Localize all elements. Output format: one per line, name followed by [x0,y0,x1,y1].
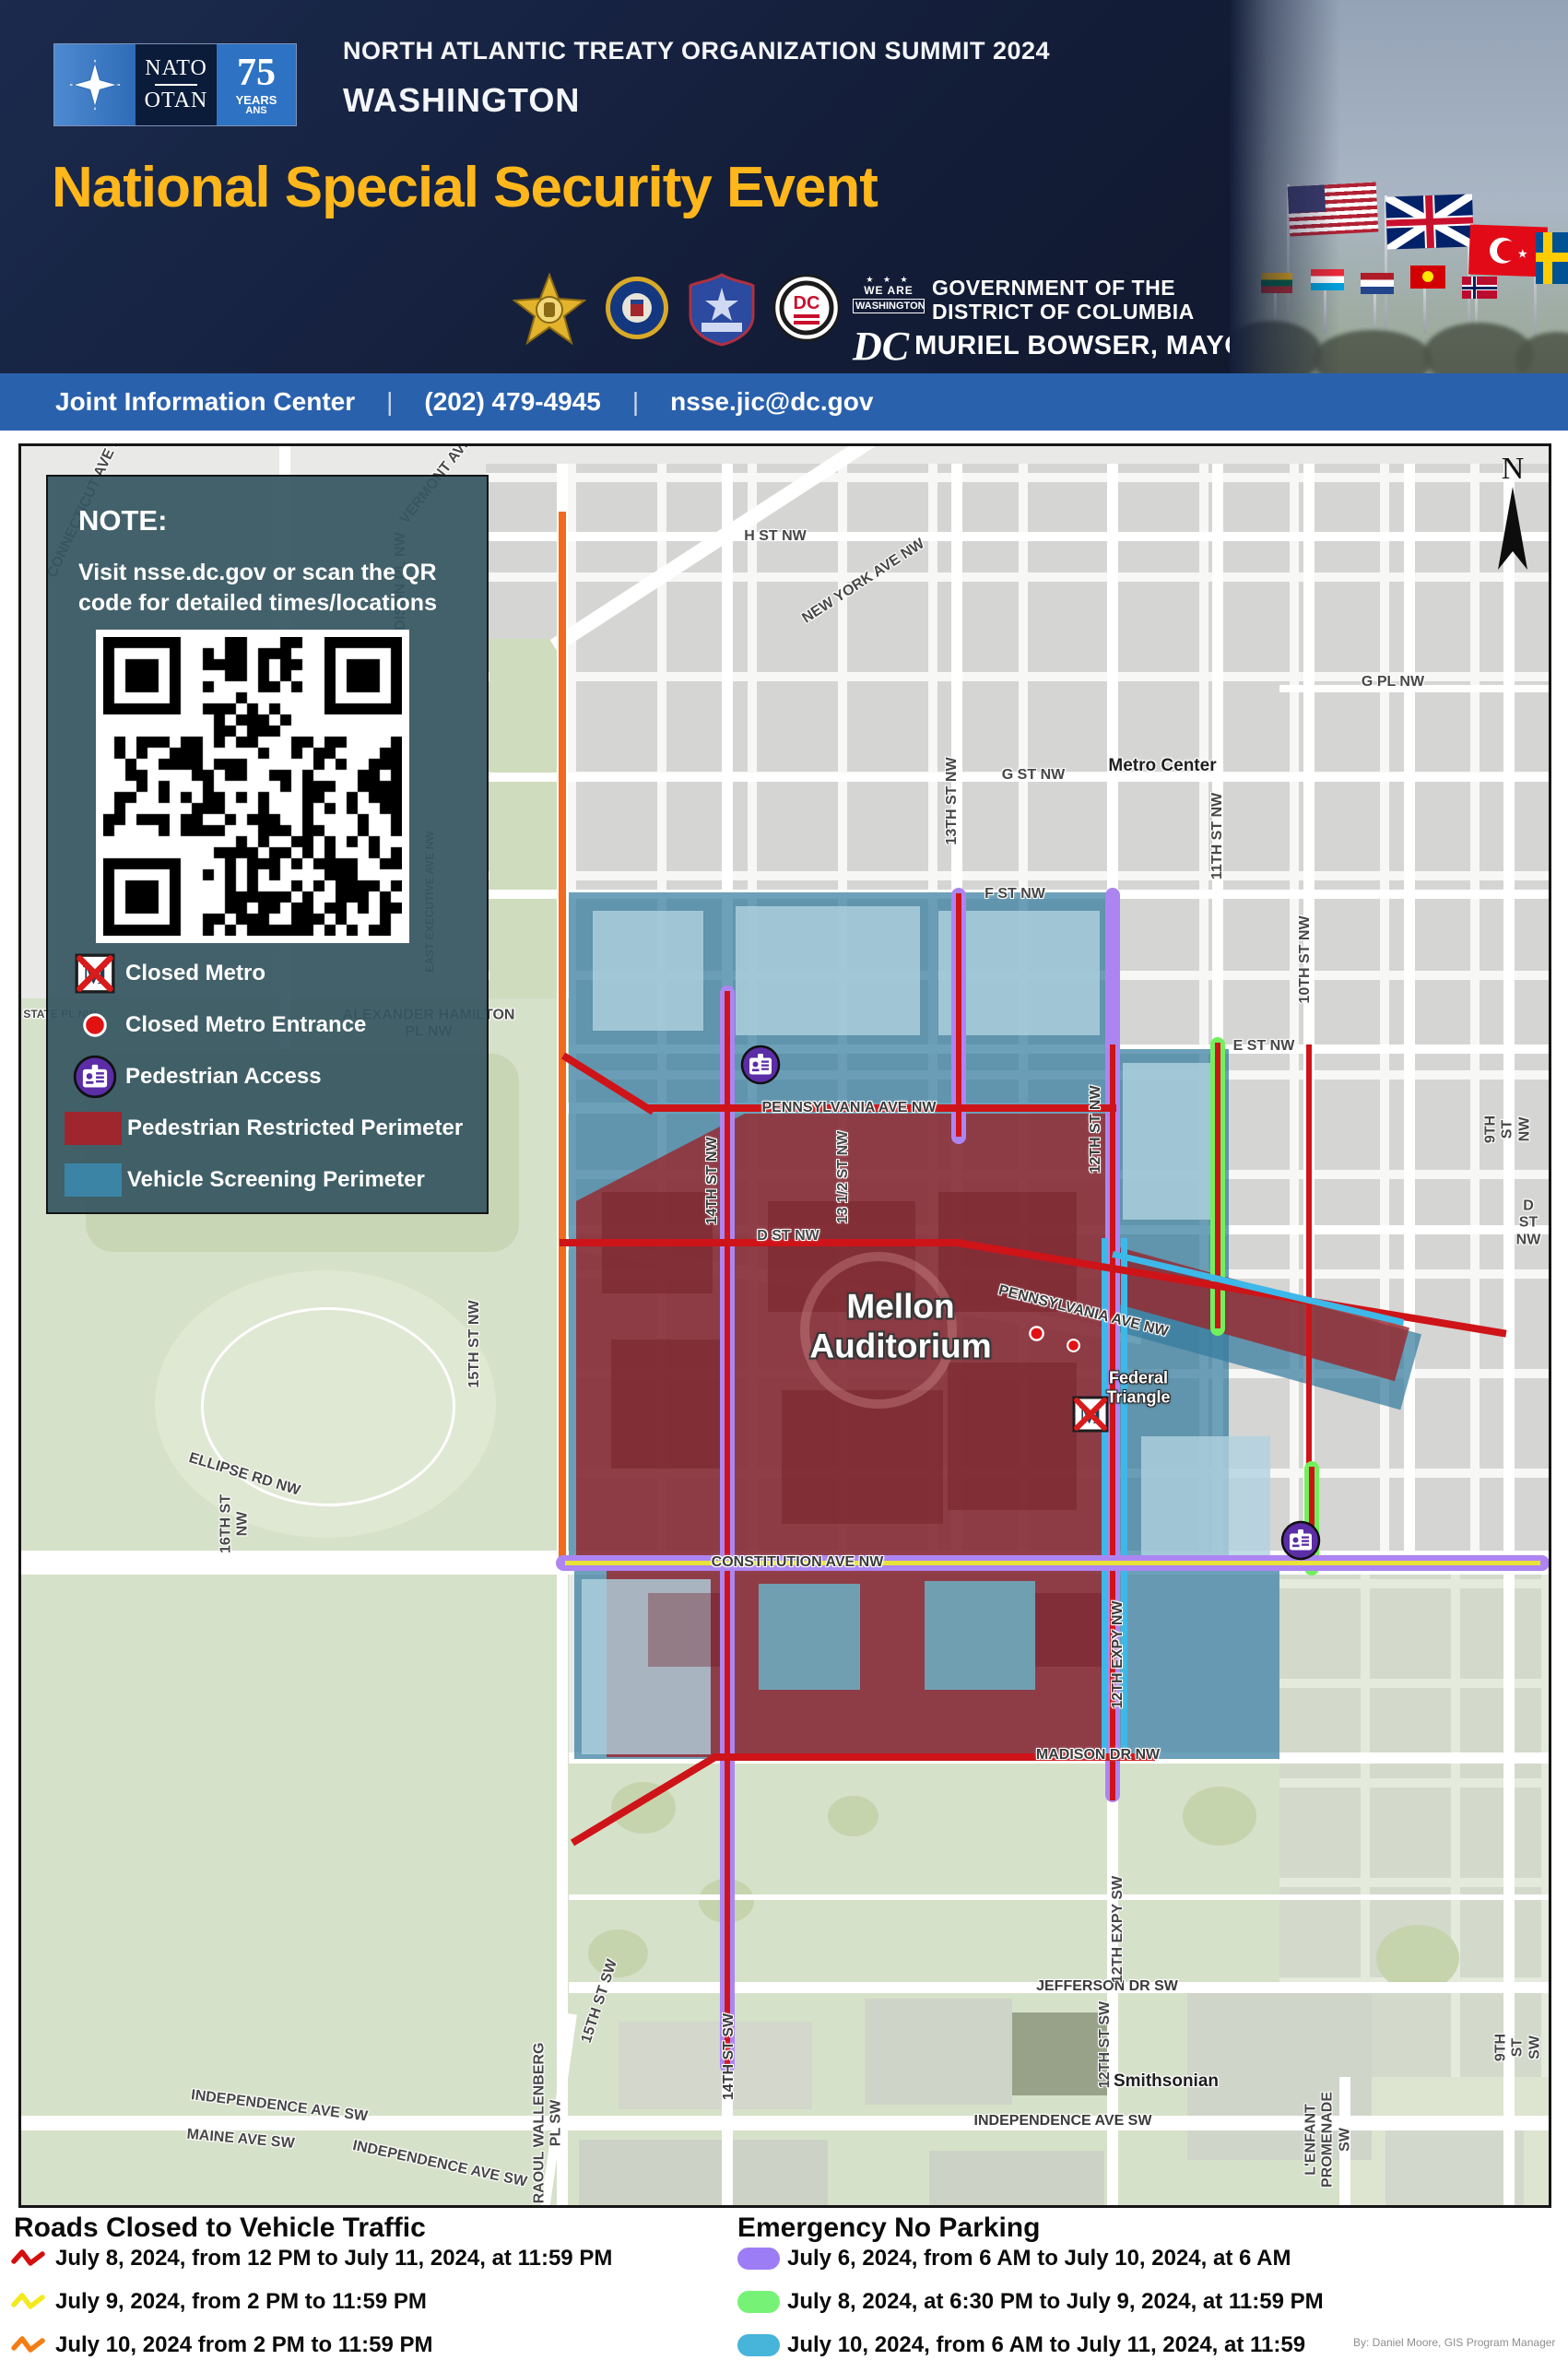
restricted-zone-building [611,1339,731,1469]
page-title: National Special Security Event [52,155,878,220]
legend-color-swatch [65,1112,122,1145]
no-parking-heading: Emergency No Parking [737,2212,1040,2244]
legend-label: Vehicle Screening Perimeter [127,1167,425,1193]
parking-item: July 6, 2024, from 6 AM to July 10, 2024… [737,2246,1291,2271]
uk-flag [1385,194,1474,249]
museum-building [619,2022,812,2109]
jic-label: Joint Information Center [55,387,355,417]
closed-metro-icon: M [65,953,125,994]
street-label: D ST NW [757,1228,819,1245]
parking-item: July 8, 2024, at 6:30 PM to July 9, 2024… [737,2289,1324,2315]
screening-zone-building [1141,1436,1270,1561]
street-label: G PL NW [1362,674,1424,690]
government-of-dc-text: GOVERNMENT OF THE DISTRICT OF COLUMBIA [932,276,1195,324]
gov-line2: DISTRICT OF COLUMBIA [932,300,1195,324]
closed-road-label: July 8, 2024, from 12 PM to July 11, 202… [55,2246,612,2271]
street-label: INDEPENDENCE AVE SW [974,2113,1152,2130]
summit-org-line: NORTH ATLANTIC TREATY ORGANIZATION SUMMI… [343,37,1050,65]
map-credit: By: Daniel Moore, GIS Program Manager [1353,2336,1555,2349]
qr-code [96,630,409,943]
restricted-zone-building [1035,1593,1104,1667]
street-label: 10TH ST NW [1297,915,1314,1003]
tree-canopy [1183,1787,1256,1846]
restricted-zone-building [648,1593,731,1667]
dc-hsema-seal-icon: DC [772,274,841,347]
street-label: G ST NW [1002,767,1065,784]
no-parking-label: July 6, 2024, from 6 AM to July 10, 2024… [787,2246,1291,2271]
screening-zone-building [736,906,920,1035]
road-item: July 9, 2024, from 2 PM to 11:59 PM [11,2289,427,2315]
courtyard [759,1584,860,1690]
street-label: 12TH EXPY SW [1110,1876,1126,1983]
street-label: PENNSYLVANIA AVE NW [761,1100,936,1116]
street-label: JEFFERSON DR SW [1036,1978,1178,1995]
tree-canopy [828,1796,878,1836]
nato-logo: NATO OTAN 75 YEARS ANS [53,43,297,126]
secret-service-star-icon [513,273,586,355]
road-item: July 10, 2024 from 2 PM to 11:59 PM [11,2332,433,2358]
legend-item: MClosed Metro [65,952,470,995]
pedestrian-access-icon [740,1044,781,1085]
metropolitan-police-badge-icon [687,273,757,351]
years-number: 75 [237,53,276,92]
svg-text:DC: DC [794,293,820,313]
road-item: July 8, 2024, from 12 PM to July 11, 202… [11,2246,612,2271]
street-label: MADISON DR NW [1036,1747,1160,1764]
norway-flag [1462,277,1497,299]
legend-label: Closed Metro [125,961,265,986]
fbi-seal-icon [604,275,670,346]
separator: | [386,387,393,417]
gov-line1: GOVERNMENT OF THE [932,276,1195,300]
street-label: H ST NW [744,528,807,545]
street [1404,464,1415,1568]
street-label: RAOUL WALLENBERG PL SW [532,2043,566,2204]
pedestrian-access-icon [65,1055,125,1099]
no-parking-line-icon [737,2291,780,2313]
pedestrian-access-icon [1280,1520,1321,1561]
separator: | [632,387,639,417]
legend-item: Pedestrian Restricted Perimeter [65,1107,470,1150]
compass-n-label: N [1492,454,1533,485]
ans-text: ANS [245,106,266,116]
museum-building [929,2151,1104,2208]
street-label: 12TH ST SW [1097,2001,1114,2088]
no-parking-label: July 10, 2024, from 6 AM to July 11, 202… [787,2332,1305,2358]
north-compass: N [1492,454,1533,583]
restricted-zone-building [948,1363,1077,1510]
we-are-washington-mark: ★ ★ ★ WE ARE WASHINGTON [853,276,925,313]
street-label: 12TH EXPY NW [1110,1600,1126,1708]
closed-road-label: July 10, 2024 from 2 PM to 11:59 PM [55,2332,433,2358]
sweden-flag [1536,232,1568,284]
place-label: Federal Triangle [1106,1368,1170,1406]
netherlands-flag [1361,273,1394,294]
note-body: Visit nsse.dc.gov or scan the QR code fo… [78,558,437,619]
road-closed-july8-line [725,991,730,2066]
nato-divider [155,84,197,86]
note-box: NOTE: Visit nsse.dc.gov or scan the QR c… [46,475,489,1214]
legend-item: Closed Metro Entrance [65,1004,470,1046]
we-are-text: WE ARE [853,285,925,297]
jic-phone: (202) 479-4945 [424,387,600,417]
washington-text: WASHINGTON [853,299,925,313]
parking-item: July 10, 2024, from 6 AM to July 11, 202… [737,2332,1305,2358]
street-label: 13TH ST NW [944,757,961,844]
road-closed-july8-line [956,893,961,1137]
no-parking-line-icon [737,2334,780,2356]
street-label: 9TH ST NW [1482,1109,1533,1150]
street-label: 15TH ST NW [466,1300,483,1387]
street-label: 14TH ST NW [704,1137,721,1224]
nato-75-years-badge: 75 YEARS ANS [217,44,296,125]
nato-wordmark: NATO OTAN [136,44,217,125]
closed-road-line-icon [11,2334,46,2356]
legend-item: Pedestrian Access [65,1056,470,1098]
street-label: 13 1/2 ST NW [835,1131,852,1223]
north-macedonia-flag [1410,265,1445,289]
screening-zone-building [593,911,703,1031]
lafayette-park [489,639,563,998]
mayor-name: MURIEL BOWSER, MAYOR [914,331,1266,361]
street-label: 11TH ST NW [1209,793,1226,879]
closed-road-line-icon [11,2291,46,2313]
street [486,532,1551,541]
legend-color-swatch [65,1163,122,1197]
closed-road-label: July 9, 2024, from 2 PM to 11:59 PM [55,2289,427,2315]
street-label: L'ENFANT PROMENADE SW [1303,2092,1353,2188]
no-parking-line-icon [737,2248,780,2270]
museum-building [579,2140,828,2208]
street-label: 12TH ST NW [1088,1085,1104,1173]
place-label: Mellon Auditorium [809,1287,991,1365]
place-label: Smithsonian [1114,2071,1219,2092]
closed-metro-entrance-icon [1066,1338,1081,1353]
legend-item: Vehicle Screening Perimeter [65,1159,470,1201]
nato-compass-icon [54,44,136,125]
legend-label: Pedestrian Access [125,1064,322,1090]
street-label: 14TH ST SW [721,2013,737,2100]
road-closed-july10-line [559,512,566,1563]
street-label: 9TH ST SW [1492,2033,1543,2063]
otan-text: OTAN [145,88,208,113]
nato-text: NATO [145,56,207,81]
no-parking-label: July 8, 2024, at 6:30 PM to July 9, 2024… [787,2289,1324,2315]
nato-flags-photo: ★ [1230,0,1568,373]
closed-metro-entrance-icon [65,1011,125,1039]
jic-email: nsse.jic@dc.gov [670,387,873,417]
poster-page: NATO OTAN 75 YEARS ANS NORTH ATLANTIC TR… [0,0,1568,2360]
street [569,1894,1551,1900]
museum-building [865,1999,1012,2105]
street-label: 16TH ST NW [218,1494,253,1553]
north-arrow-icon [1496,485,1529,573]
note-heading: NOTE: [78,504,167,537]
summit-city: WASHINGTON [343,81,580,120]
dc-flag-logo: DC [853,328,909,365]
place-label: Metro Center [1108,756,1216,776]
closed-metro-icon: M [1072,1396,1109,1433]
joint-information-center-bar: Joint Information Center | (202) 479-494… [0,373,1568,431]
courtyard [925,1581,1035,1690]
header-banner: NATO OTAN 75 YEARS ANS NORTH ATLANTIC TR… [0,0,1568,373]
closed-road-line-icon [11,2248,46,2270]
legend-label: Closed Metro Entrance [125,1012,366,1038]
street-label: F ST NW [984,886,1045,903]
closed-metro-entrance-icon [1028,1325,1045,1342]
security-perimeter-map: H ST NWNEW YORK AVE NWG PL NWG ST NWMetr… [18,443,1551,2208]
street-label: D ST NW [1516,1198,1541,1248]
restricted-zone-building [782,1390,943,1524]
legend-label: Pedestrian Restricted Perimeter [127,1115,463,1141]
screening-zone-building [1123,1063,1215,1220]
dc-government-block: ★ ★ ★ WE ARE WASHINGTON GOVERNMENT OF TH… [853,276,1266,364]
roads-closed-heading: Roads Closed to Vehicle Traffic [14,2212,426,2244]
street-label: E ST NW [1233,1038,1295,1055]
street-label: CONSTITUTION AVE NW [712,1554,884,1571]
